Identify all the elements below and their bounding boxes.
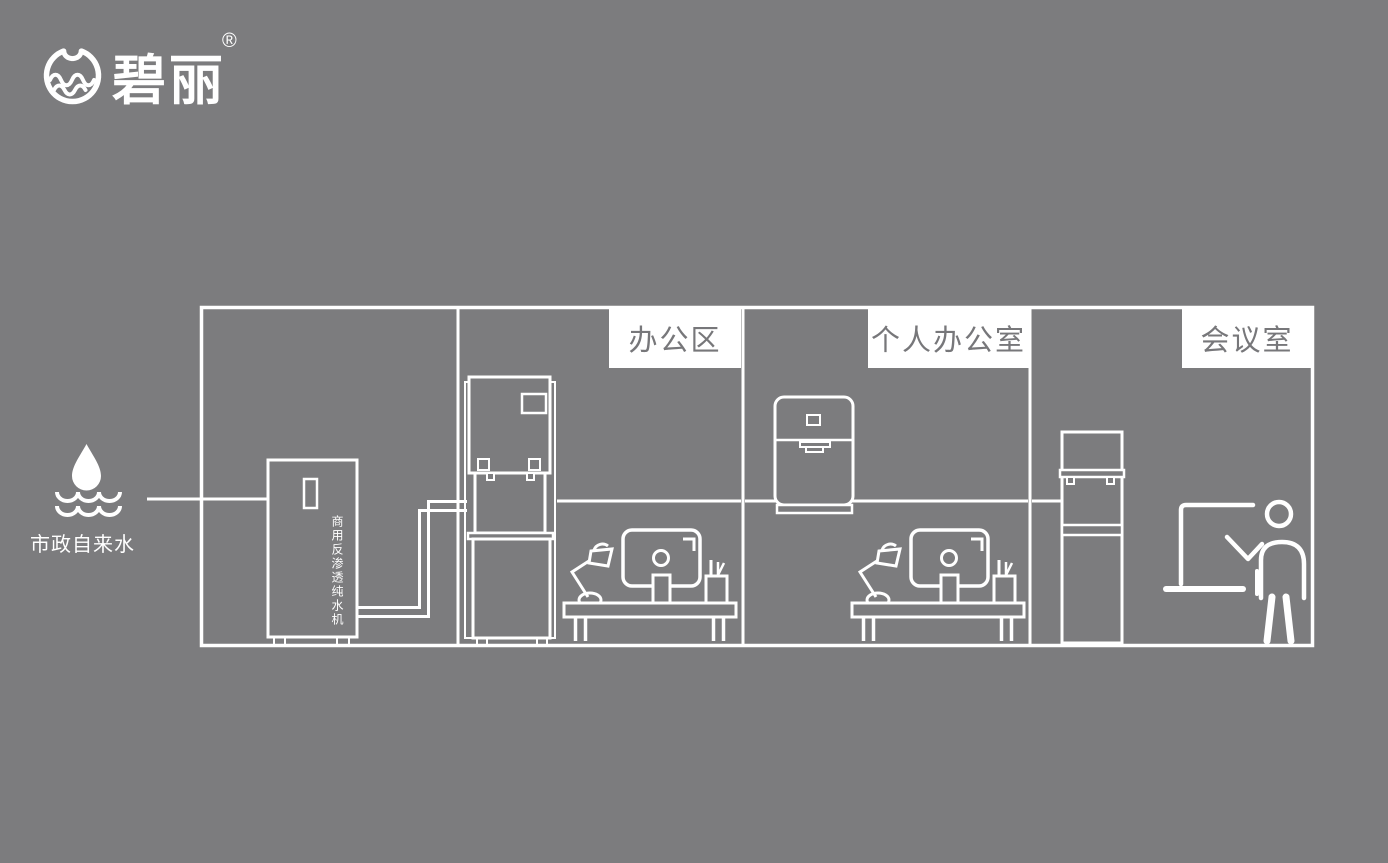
building-outline xyxy=(202,307,1313,646)
faucet-icon xyxy=(1107,477,1114,484)
presenter-leg xyxy=(1286,597,1291,641)
presenter-leg xyxy=(1267,597,1272,641)
faucet-icon xyxy=(487,473,494,480)
monitor-stand xyxy=(653,575,670,604)
brand-logo: 碧丽 ® xyxy=(40,30,260,120)
waves-icon xyxy=(57,492,120,515)
floor-standing-dispenser xyxy=(465,377,555,645)
slim-floor-dispenser xyxy=(1060,432,1124,643)
room-label-text: 会议室 xyxy=(1200,317,1293,359)
desk-top xyxy=(564,603,736,617)
presenter-torso xyxy=(1261,542,1304,598)
room-label-text: 个人办公室 xyxy=(871,317,1026,359)
faucet-icon xyxy=(527,473,534,480)
diagram-canvas: 碧丽 ® 市政自来水 商用反渗透纯水机 办公区 个人办公室 会议室 xyxy=(0,0,1388,863)
pen-cup-icon xyxy=(706,560,727,604)
purifier-label: 商用反渗透纯水机 xyxy=(330,515,344,627)
room-label-text: 办公区 xyxy=(628,317,721,359)
water-drop-icon xyxy=(72,444,101,491)
presenter-arm xyxy=(1227,537,1262,559)
feed-pipe xyxy=(357,502,467,617)
brand-name: 碧丽 xyxy=(112,36,226,115)
presentation-board-icon xyxy=(1166,505,1253,589)
room-label-personal-office: 个人办公室 xyxy=(868,307,1029,368)
desk-lamp-icon xyxy=(572,544,612,607)
desk-legs xyxy=(576,617,724,641)
registered-mark: ® xyxy=(222,30,237,53)
desk-personal-office xyxy=(852,530,1024,641)
desk-office-area xyxy=(564,530,736,641)
faucet-icon xyxy=(1067,477,1074,484)
presenter-icon xyxy=(1227,502,1304,641)
countertop-dispenser xyxy=(775,397,853,513)
room-label-meeting-room: 会议室 xyxy=(1182,307,1312,368)
room-label-office-area: 办公区 xyxy=(609,307,741,368)
line-art xyxy=(0,0,1388,863)
water-source-label: 市政自来水 xyxy=(30,528,160,557)
